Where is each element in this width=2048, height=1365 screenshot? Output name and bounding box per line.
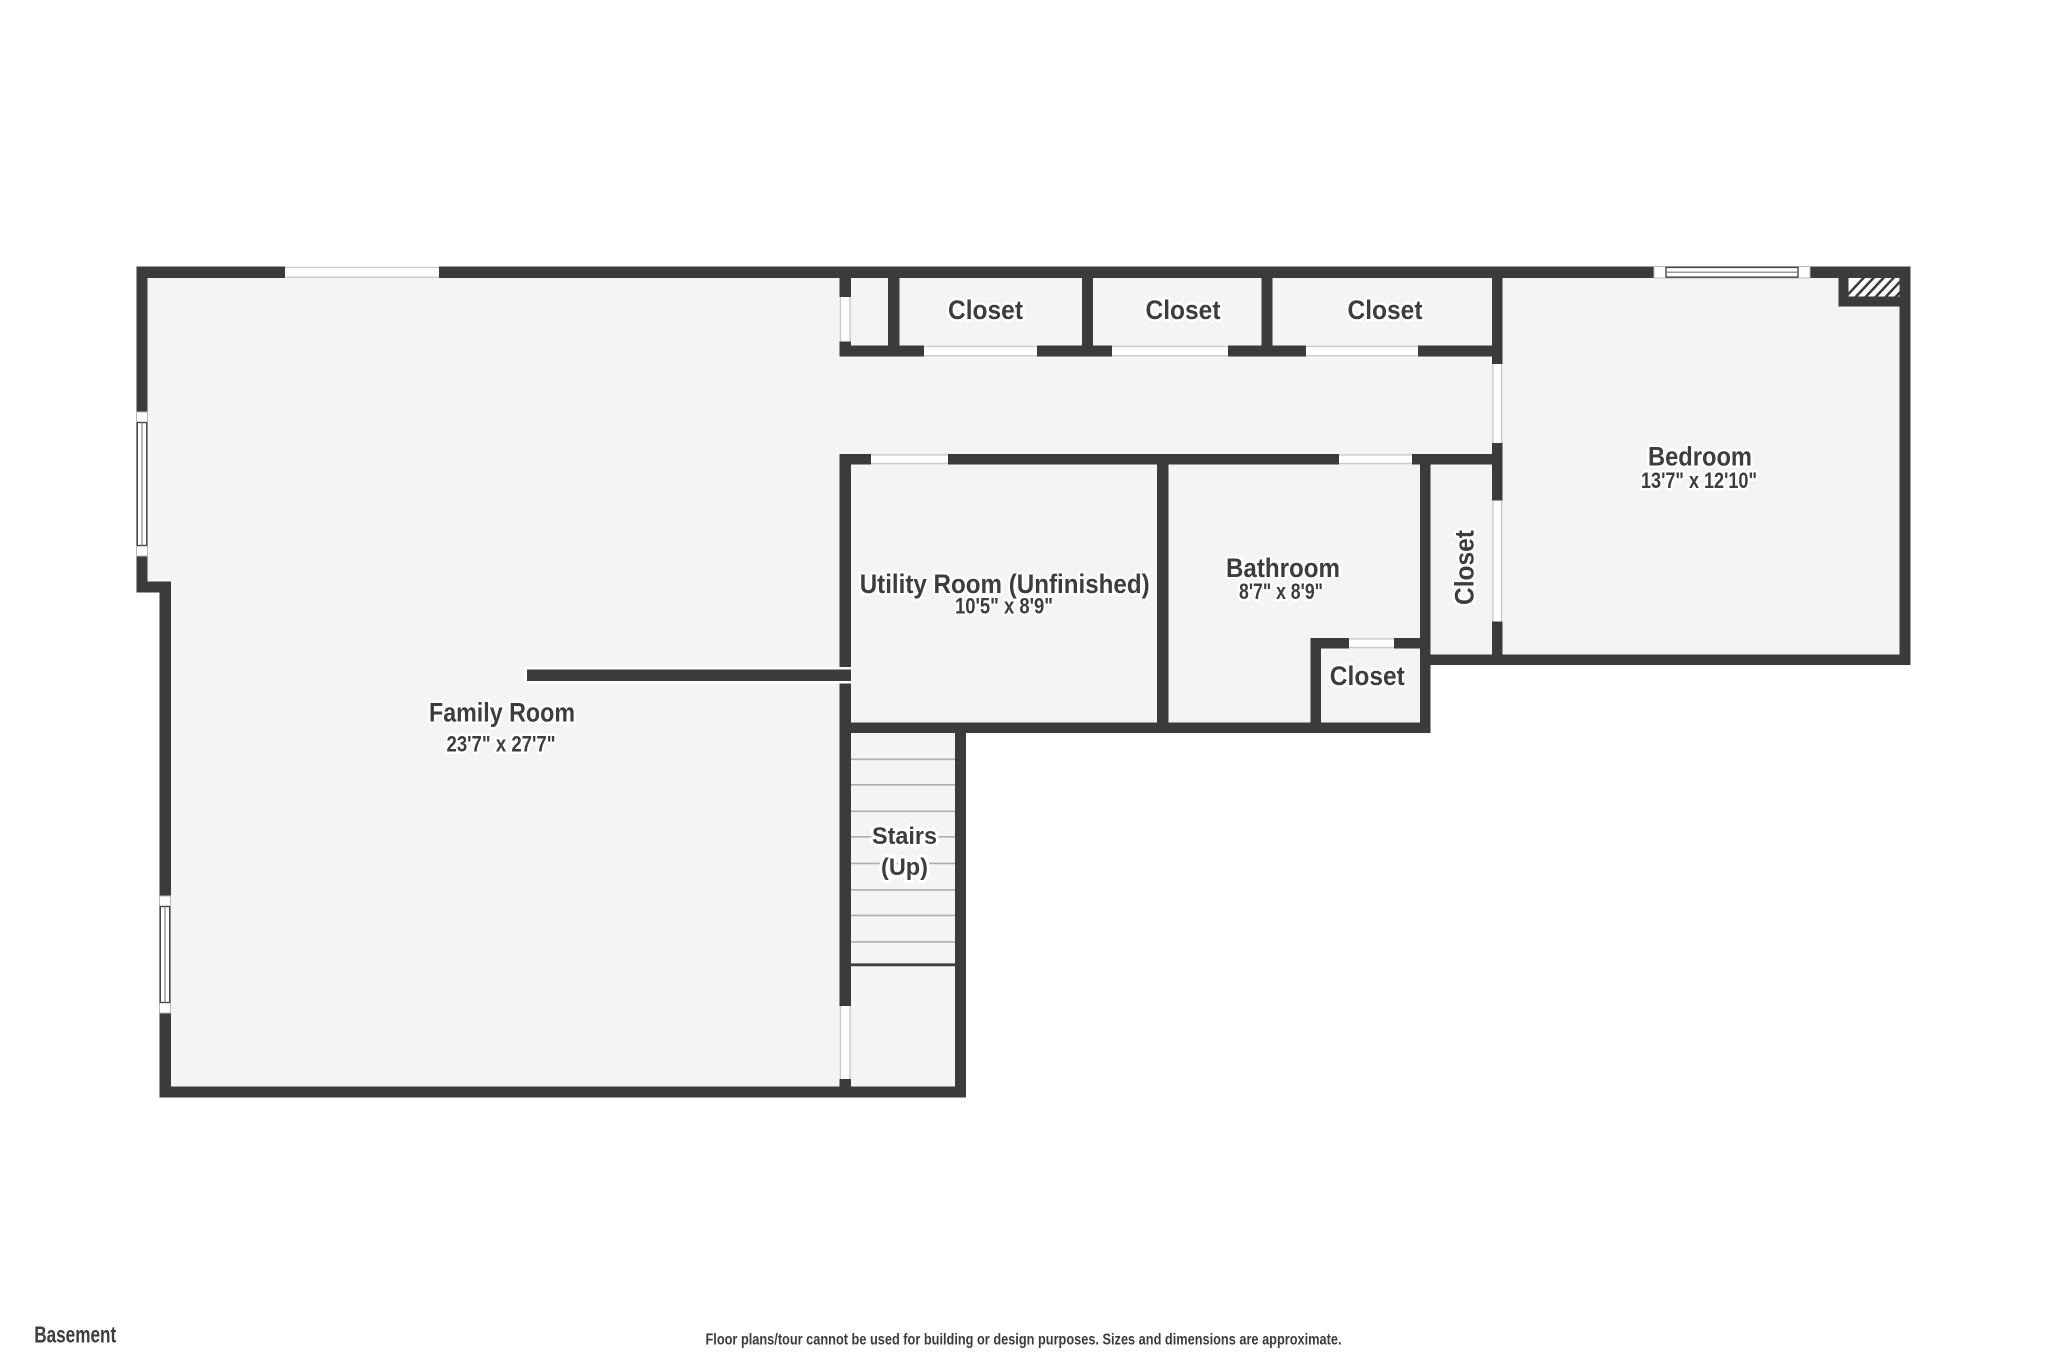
- svg-text:Closet: Closet: [1348, 295, 1423, 325]
- svg-text:(Up): (Up): [881, 854, 928, 881]
- svg-text:Stairs: Stairs: [872, 823, 937, 850]
- svg-text:Floor plans/tour cannot be use: Floor plans/tour cannot be used for buil…: [706, 1332, 1342, 1349]
- svg-text:Closet: Closet: [1330, 661, 1405, 691]
- svg-text:23'7" x 27'7": 23'7" x 27'7": [447, 732, 556, 757]
- svg-text:Closet: Closet: [1450, 530, 1480, 605]
- svg-text:Closet: Closet: [948, 295, 1023, 325]
- svg-text:Family Room: Family Room: [429, 698, 575, 728]
- svg-text:10'5" x 8'9": 10'5" x 8'9": [955, 594, 1053, 619]
- svg-text:8'7" x 8'9": 8'7" x 8'9": [1239, 579, 1323, 604]
- svg-text:13'7" x 12'10": 13'7" x 12'10": [1641, 468, 1757, 493]
- svg-text:Basement: Basement: [34, 1322, 116, 1348]
- svg-text:Bedroom: Bedroom: [1648, 442, 1752, 472]
- svg-text:Closet: Closet: [1146, 295, 1221, 325]
